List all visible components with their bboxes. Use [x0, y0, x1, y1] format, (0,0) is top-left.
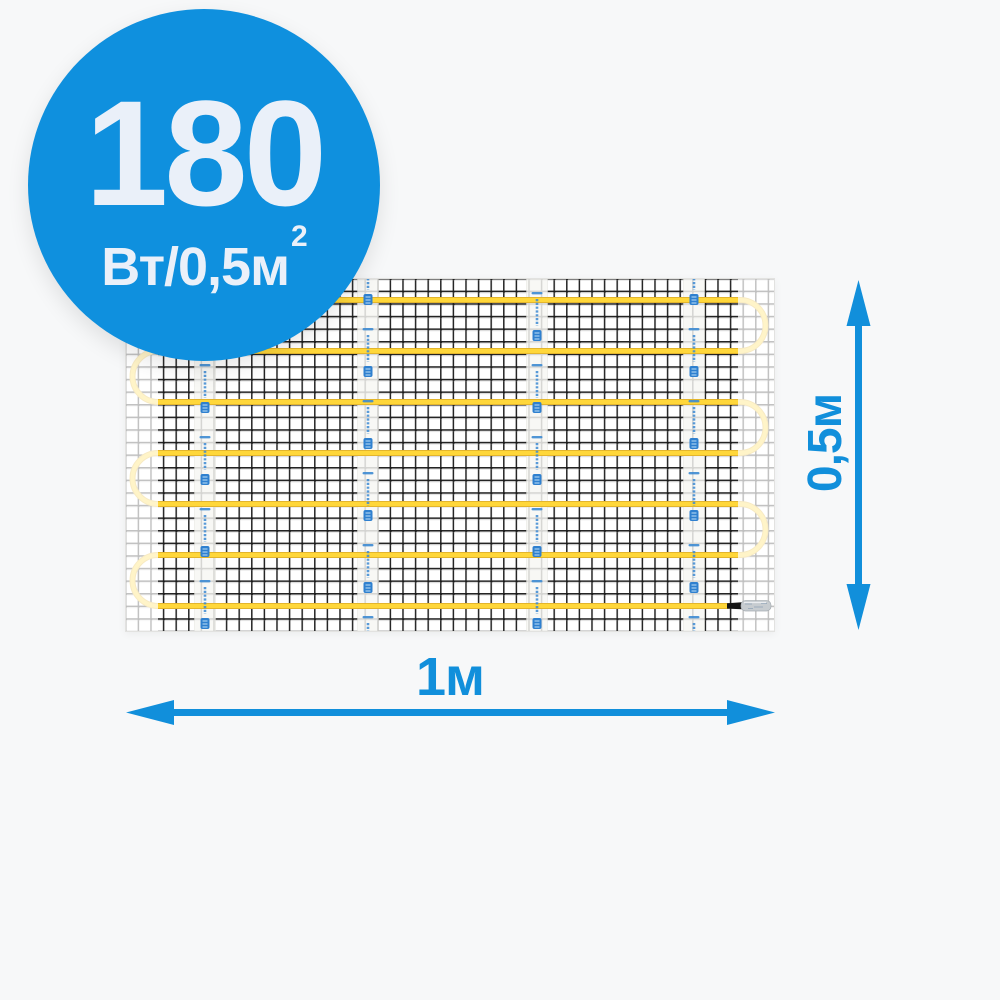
- width-arrow-icon: [125, 690, 776, 735]
- height-arrow-icon: [838, 278, 880, 632]
- power-unit-text: Вт/0,5м: [101, 236, 289, 298]
- power-badge: 180 Вт/0,5м2: [28, 9, 380, 361]
- power-unit-superscript: 2: [291, 220, 307, 254]
- mat-right-margin: [738, 278, 775, 632]
- product-image: 180 Вт/0,5м2 1м 0,5м: [0, 0, 1000, 1000]
- power-value: 180: [85, 82, 323, 225]
- power-unit: Вт/0,5м2: [101, 236, 306, 298]
